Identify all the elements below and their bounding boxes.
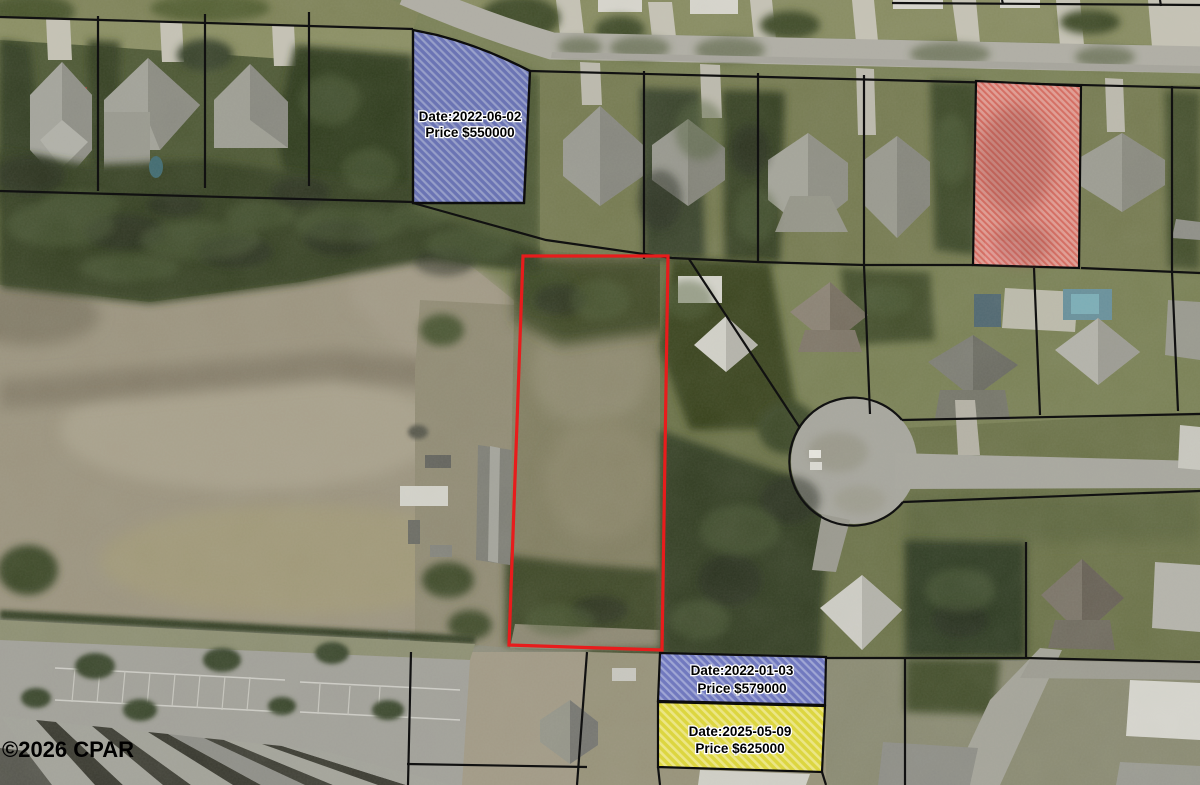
svg-text:©2026 CPAR: ©2026 CPAR (2, 737, 134, 762)
svg-text:Price $550000: Price $550000 (425, 125, 514, 140)
svg-text:Date:2022-06-02: Date:2022-06-02 (419, 109, 522, 124)
svg-text:Date:2025-05-09: Date:2025-05-09 (689, 724, 792, 739)
svg-text:Price $579000: Price $579000 (697, 681, 786, 696)
svg-text:Price $625000: Price $625000 (695, 741, 784, 756)
svg-text:Date:2022-01-03: Date:2022-01-03 (691, 663, 794, 678)
